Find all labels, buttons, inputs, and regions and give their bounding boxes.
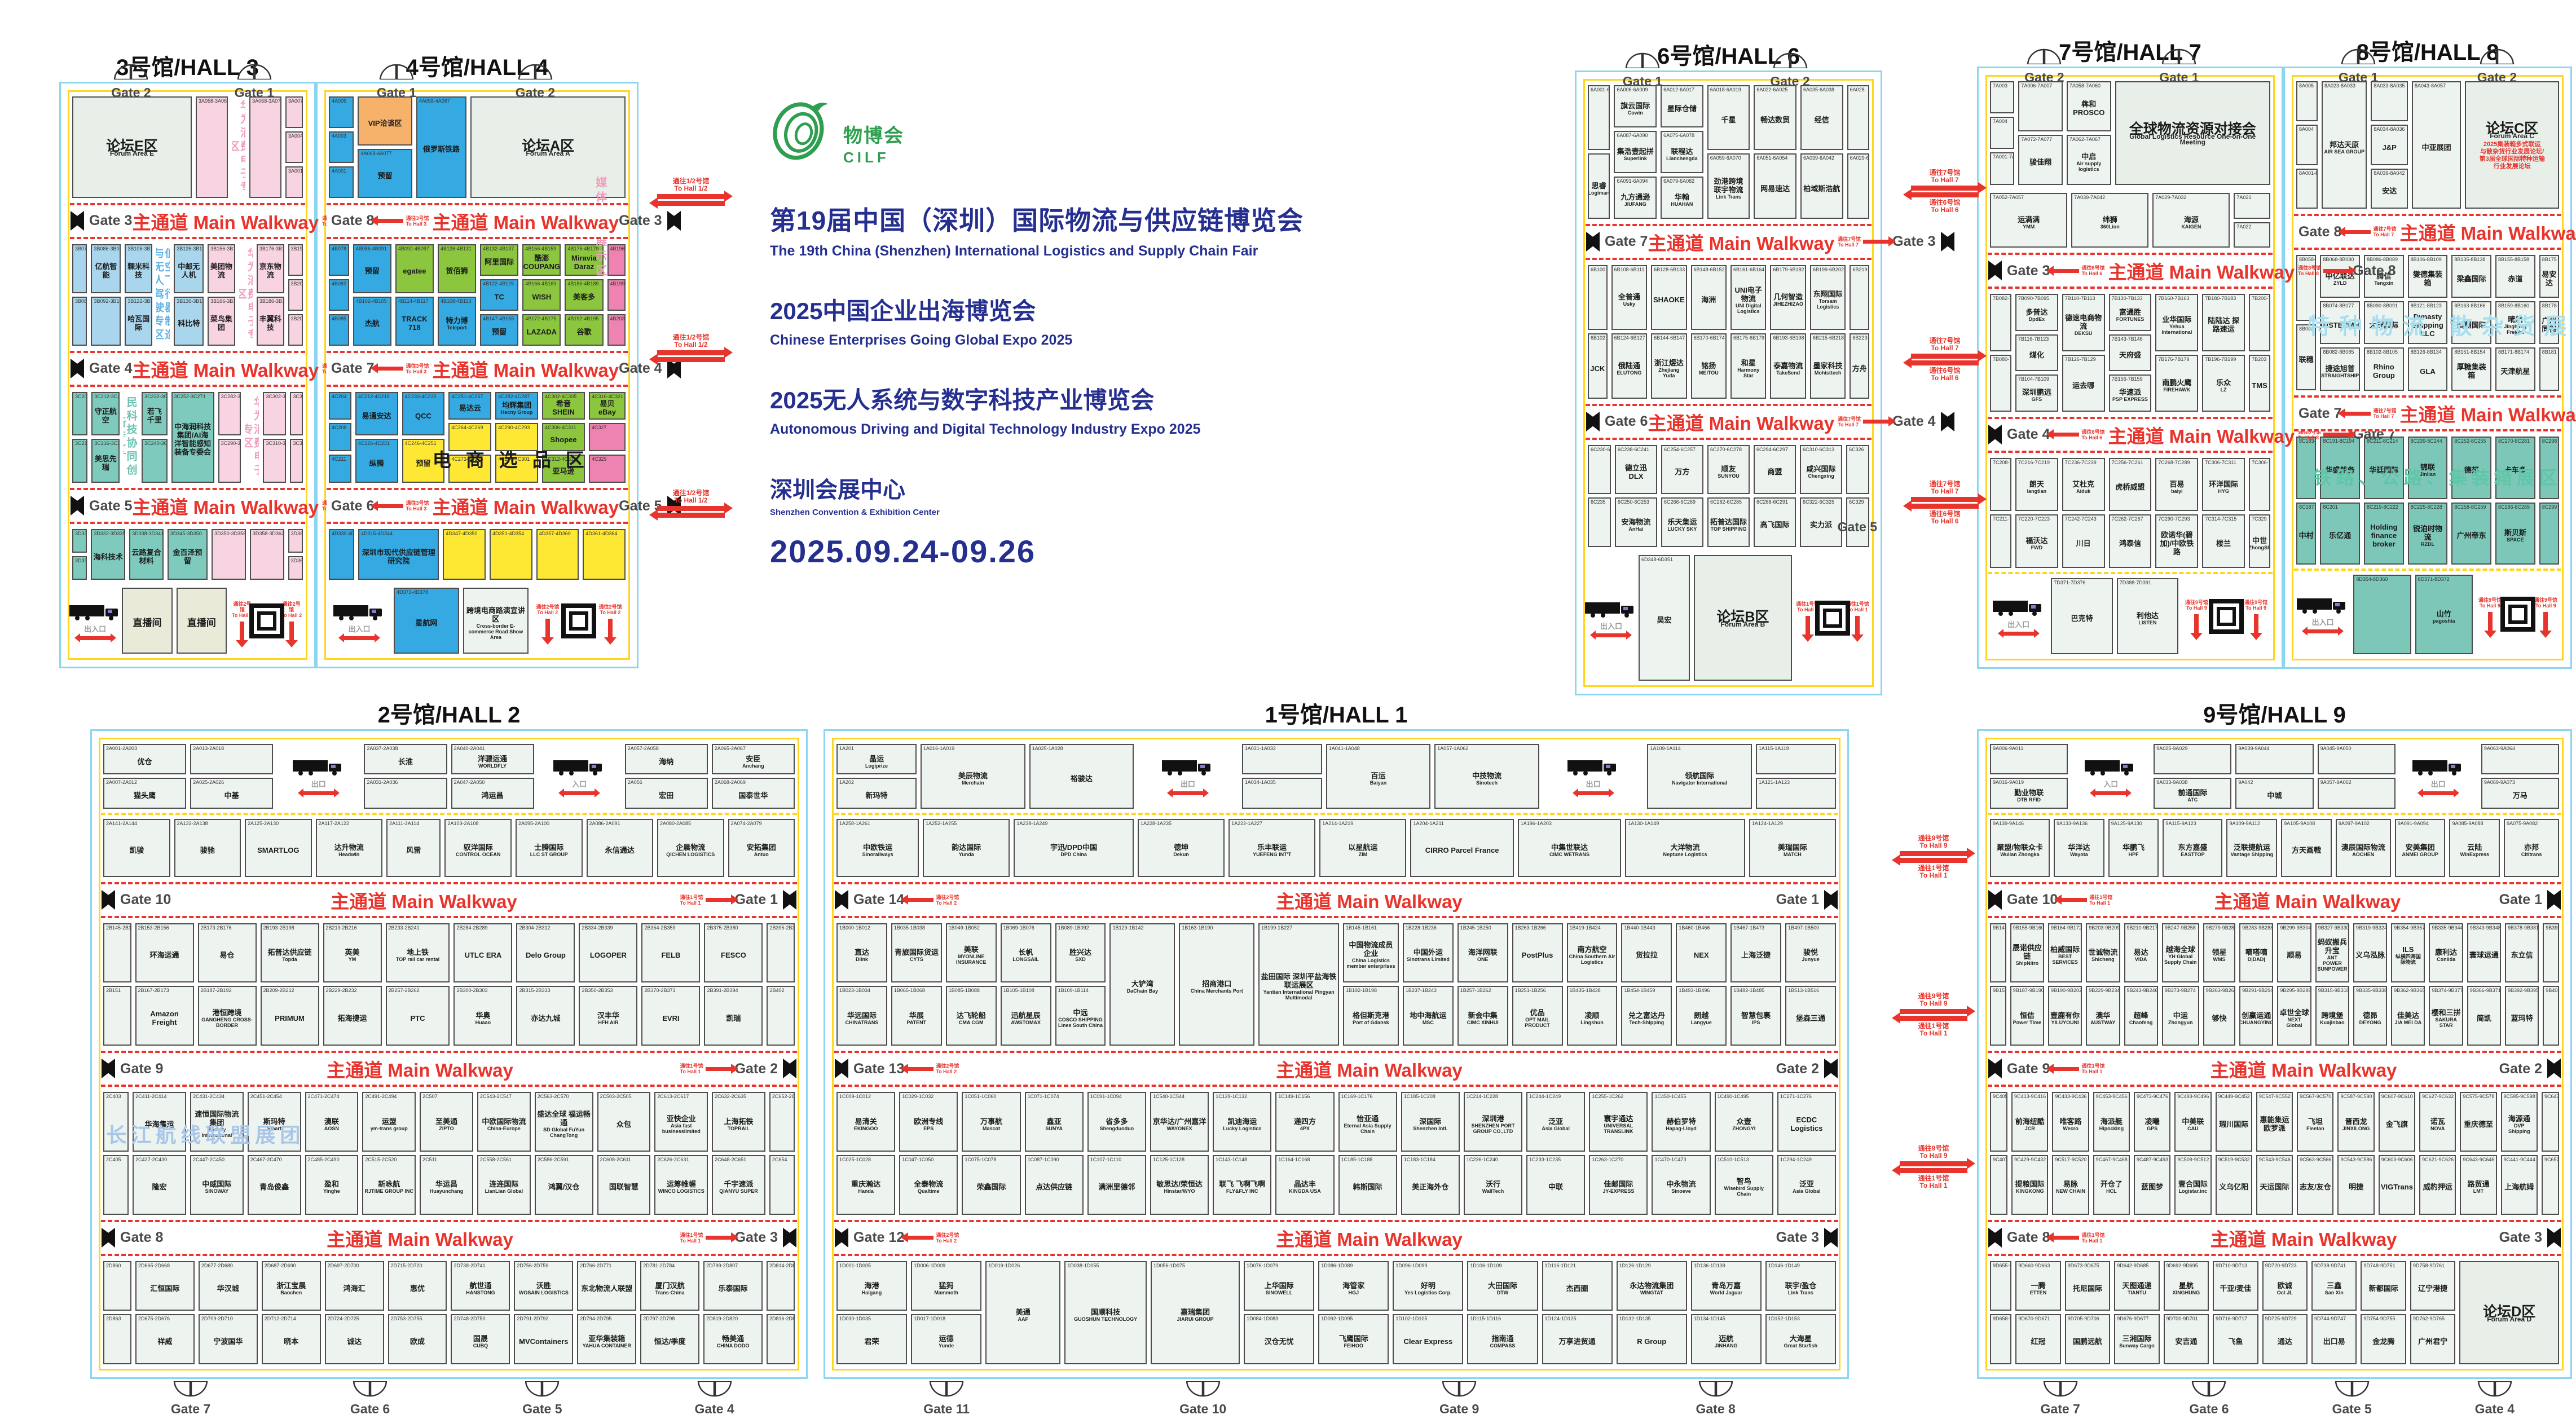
booth-code: 4C264-4C269 xyxy=(451,425,483,430)
booth-sublabel: Baochen xyxy=(280,1290,302,1295)
to-hall-arrow xyxy=(2053,1067,2079,1071)
booth-column: 2C471-2C474澳联AOSN2C485-2C490盈和Yinghe xyxy=(305,1092,359,1215)
gate-bowtie-icon xyxy=(101,1057,116,1080)
booth: 1A130-1A149大洋物流Neptune Logistics xyxy=(1625,819,1745,877)
booth-sublabel: Oct JL xyxy=(2277,1290,2293,1295)
booth-label: 劲港跨境 联宇物流 xyxy=(1710,177,1748,194)
booth-column: 9C493-9C496中美联CAU9C509-9C512壹合国际Logistar… xyxy=(2174,1092,2211,1215)
booth-label: 环洋国际 xyxy=(2209,480,2238,488)
booth-code: 2A133-2A138 xyxy=(177,821,208,826)
booth: 2A057-2A058海纳 xyxy=(625,744,708,774)
booth-label: 大洋物流 xyxy=(1670,843,1699,852)
booth: 9B319-9B324义乌泓脉 xyxy=(2353,923,2387,983)
booth: 9C603-9C606VIGTrans xyxy=(2379,1155,2415,1215)
booth-label: 嘉瑞集团 xyxy=(1181,1308,1210,1316)
booth-column: 2C491-2C494运盟ym-trans group2C515-2C520新咏… xyxy=(362,1092,416,1215)
hall-map-hall3: 论坛E区Forum Area E3A058-3A061华为消费电子专区3A068… xyxy=(59,82,316,668)
booth-label: 阿里国际 xyxy=(485,258,514,266)
booth-label: 上海航姆 xyxy=(2504,1183,2534,1191)
booth-code: 9C587-9C590 xyxy=(2340,1094,2372,1099)
booth-sublabel: CHINA DODO xyxy=(717,1343,750,1349)
to-hall-text: 通往6号馆To Hall 6 xyxy=(1930,199,1961,214)
booth-column: 9B343-9B348寰球运通9B366-9B371简凯 xyxy=(2467,923,2501,1046)
booth-column: 8B106-8B109燮德集装箱8B121-8B123Dynasty Shipp… xyxy=(2408,255,2448,390)
booth-code: 2C558-2C561 xyxy=(480,1157,512,1162)
booth: 8A039-8A042安达 xyxy=(2371,169,2408,209)
booth-sublabel: Antuo xyxy=(754,852,769,857)
booth-label: 指南通 xyxy=(1491,1334,1513,1343)
booth-sublabel: Teleport xyxy=(447,325,467,330)
booth-label: 运筹帷幄 xyxy=(667,1180,696,1188)
booth-code: 1D136-1D139 xyxy=(1694,1263,1725,1268)
booth-code: 2A001-2A003 xyxy=(106,746,137,751)
down-arrow xyxy=(2254,614,2258,633)
stair-item xyxy=(2215,578,2238,654)
booth: 9D758-9D761辽宁港捷 xyxy=(2410,1261,2455,1311)
booth: 3C322 xyxy=(290,392,303,436)
gate-bowtie-icon xyxy=(782,1227,797,1249)
booth: 2D816-2D817 xyxy=(767,1314,795,1364)
booth-code: 1A124-1A129 xyxy=(1752,821,1783,826)
booth-code: 8A034-8A036 xyxy=(2374,126,2405,132)
booth-code: 1B023-1B034 xyxy=(839,988,870,993)
booth-column: 1C091-1C094省多多Shengduoduo1C107-1C110满洲里德… xyxy=(1087,1092,1146,1215)
booth-code: 7C262-7C267 xyxy=(2112,516,2143,522)
booth: 7B104-7B109深圳鹏远GFS xyxy=(2015,374,2058,411)
booth-label: Miravia Daraz xyxy=(567,254,601,271)
booth-code: 1B089-1B092 xyxy=(1058,925,1089,931)
booth-column: 4C302-4C305希音 SHEIN4C306-4C311Shopee4C31… xyxy=(542,392,585,483)
booth: 2C563-2C570盛达全球 福运畅通SD Global FuYun Chan… xyxy=(535,1092,593,1152)
booth-sublabel: STRAIGHTSHIP xyxy=(2321,373,2359,378)
booth-sublabel: Aiduk xyxy=(2076,488,2090,494)
booth-code: 1C025-1C028 xyxy=(839,1157,871,1162)
to-hall-text: 通往1号馆To Hall 1 xyxy=(1918,865,1949,879)
booth-sublabel: China Southern Air Logistics xyxy=(1569,954,1615,965)
booth-label: 网易速达 xyxy=(1760,184,1790,193)
booth-label: 以星航运 xyxy=(1348,843,1377,852)
booth-label: 深圳港 xyxy=(1482,1114,1504,1123)
booth-code: 7A029-7A032 xyxy=(2155,195,2186,200)
booth-code: 7B203 xyxy=(2252,356,2266,362)
booth-code: 7C256-7C261 xyxy=(2112,460,2143,465)
booth-label: Dynasty Shipping LLC xyxy=(2410,312,2446,338)
walkway-label: 主通道 Main Walkway xyxy=(2108,1224,2499,1251)
to-hall-text: 通往9号馆To Hall 9 xyxy=(2244,600,2267,611)
booth-label: 迅航星辰 xyxy=(1011,1011,1041,1020)
booth-code: 2D756-2D759 xyxy=(517,1263,548,1268)
booth: 9C543-9C586明捷 xyxy=(2337,1155,2374,1215)
booth-code: 3A058-3A061 xyxy=(199,98,228,104)
booth-column: 1D086-1D089海管家HGJ1D092-1D095飞鹰国际FEIHOO xyxy=(1318,1261,1389,1364)
walkway-label: 主通道 Main Walkway xyxy=(132,355,319,382)
booth-column: 2C451-2C454斯玛特Smart2C467-2C470青岛俊鑫 xyxy=(248,1092,301,1215)
booth-code: 6A039-6A042 xyxy=(1803,155,1834,161)
booth-label: 沃行 xyxy=(1486,1180,1500,1188)
booth: 2A040-2A041洋骠运通WORLDFLY xyxy=(451,744,534,774)
booth: 1C233-1C235中联 xyxy=(1526,1155,1585,1215)
booth: 2D814-2D815 xyxy=(767,1261,795,1311)
booth-label: 祥威 xyxy=(157,1337,172,1346)
booth-band: 1D001-1D005海港Haigang1D030-1D035君荣1D006-1… xyxy=(834,1257,1838,1368)
booth-code: 1A228-1A235 xyxy=(1141,821,1172,826)
booth-column: 2B153-2B156环海运通2B167-2B173Amazon Freight xyxy=(135,923,194,1046)
booth-label: 地上铁 xyxy=(407,948,429,957)
booth-band: 4D330-4D3334D315-4D344深圳市现代供应链管理研究院4D347… xyxy=(327,525,628,584)
booth-code: 6B161-6B164 xyxy=(1733,267,1764,272)
booth-label: TC xyxy=(495,293,504,301)
booth-code: 9A045-9A050 xyxy=(2320,746,2352,751)
booth-label: 荣鑫国际 xyxy=(976,1183,1006,1191)
booth: 8A023-8A033邦达天原AIR SEA GROUP xyxy=(2322,81,2367,209)
booth-label: 沃胜 xyxy=(536,1281,551,1290)
booth-label: CIRRO Parcel France xyxy=(1425,846,1499,854)
booth-sublabel: WORLDFLY xyxy=(478,763,507,769)
booth-code: 4D347-4D350 xyxy=(446,531,477,536)
gate-label: Gate 1 xyxy=(2339,70,2378,85)
booth-code: 8B106-8B109 xyxy=(2411,257,2442,262)
to-hall-text: 通往7号馆To Hall 7 xyxy=(1930,169,1961,184)
booth-code: 9C407-9C408 xyxy=(1993,1157,2007,1162)
booth-code: 9B263-9B266 xyxy=(2206,988,2235,993)
booth-sublabel: WOSAIN LOGISTICS xyxy=(519,1290,569,1295)
booth-code: 6C270-6C278 xyxy=(1710,447,1742,452)
booth-column: 4B0784B0824B085 xyxy=(329,244,349,346)
booth: 2D799-2D807乐泰国际 xyxy=(703,1261,763,1311)
booth: 1A204-1A211CIRRO Parcel France xyxy=(1410,819,1513,877)
booth: 1B069-1B076长帆LONGSAIL xyxy=(1001,923,1051,983)
booth-sublabel: ELUTONG xyxy=(1617,370,1641,376)
booth-code: 1B049-1B052 xyxy=(949,925,980,931)
booth-code: 9A105-9A108 xyxy=(2284,821,2315,826)
booth-column: 1B263-1B266PostPlus1B251-1B256优品OPT MAIL… xyxy=(1512,923,1563,1046)
booth-code: 9B354-9B357 xyxy=(2394,925,2425,931)
booth-column: 2A037-2A038长淮2A031-2A036 xyxy=(364,744,447,809)
hall-connector: 通往1/2号馆To Hall 1/2 xyxy=(657,178,725,206)
booth-column: 9C473-9C476凌曦GPS9C487-9C493蓝图梦 xyxy=(2134,1092,2170,1215)
to-hall-arrow-right xyxy=(657,350,725,355)
booth: 4B078 xyxy=(329,244,349,276)
booth: 9A063-9A064 xyxy=(2481,744,2559,774)
booth-label: 卡车多 xyxy=(2504,466,2526,474)
booth-label: 菜鸟集团 xyxy=(210,315,233,332)
booth-label: 陆陆达 探路速运 xyxy=(2204,316,2243,333)
booth-label: 宏田 xyxy=(659,791,673,800)
booth-label: Delo Group xyxy=(526,951,566,959)
to-hall-arrow xyxy=(2345,412,2371,416)
booth-code: 9B295-9B298 xyxy=(2280,988,2311,993)
gate-label: Gate 7 xyxy=(1605,233,1648,250)
booth: 3C240-3C245 xyxy=(142,439,167,483)
booth: 4C251-4C257易达云 xyxy=(448,392,491,420)
booth-code: 3B106-3B109 xyxy=(127,246,152,252)
gate-bowtie-icon xyxy=(1940,411,1955,433)
hall-bands: 论坛E区Forum Area E3A058-3A061华为消费电子专区3A068… xyxy=(70,92,305,658)
entrance-label: 出口 xyxy=(1181,778,1195,789)
booth-sublabel: AOSN xyxy=(324,1126,339,1131)
booth-band: 9D655-9D6569D658-9D6599D660-9D663一腾ETTEN… xyxy=(1988,1257,2561,1368)
booth-code: 1D126-1D129 xyxy=(1619,1263,1651,1268)
booth: 全球物流资源对接会Global Logistics Resource One-o… xyxy=(2115,81,2270,185)
booth-label: 达升物流 xyxy=(334,843,364,852)
booth-label: 中世 xyxy=(2252,536,2267,545)
booth-label: 盛达全球 福运畅通 xyxy=(537,1110,591,1127)
booth-code: 2D860 xyxy=(106,1263,121,1268)
booth-code: 3C328 xyxy=(293,440,303,446)
booth-code: 2B395-2B398 xyxy=(769,925,795,931)
gate-bowtie-icon xyxy=(2547,1057,2561,1080)
booth-code: 6C235 xyxy=(1591,499,1606,505)
booth: 9D658-9D659 xyxy=(1990,1314,2011,1364)
booth-label: 德坤 xyxy=(1174,843,1188,852)
gate-bowtie-icon xyxy=(1586,231,1600,253)
booth-column: 2B213-2B216英美YM2B229-2B232拓海捷运 xyxy=(323,923,382,1046)
booth-code: 1C075-1C078 xyxy=(965,1157,996,1162)
booth: 9B335-9B344康利达Conlida xyxy=(2429,923,2463,983)
booth: 1C510-1C513智鸟Wisebird Supply Chain xyxy=(1715,1155,1773,1215)
booth-code: 2C515-2C520 xyxy=(365,1157,397,1162)
booth-sublabel: YH Global Supply Chain xyxy=(2164,954,2197,965)
hall-ground-band: 出入口直播间直播间通往2号馆To Hall 2通往2号馆To Hall 2 xyxy=(70,584,305,658)
booth-sublabel: NEW CHAIN xyxy=(2056,1188,2085,1194)
booth-sublabel: HYG xyxy=(2218,488,2229,494)
booth: 1C143-1C148联飞 飞啊飞啊FLY&FLY INC xyxy=(1213,1155,1271,1215)
booth: 4D351-4D354 xyxy=(490,529,532,580)
booth-code: 4C302-4C305 xyxy=(545,394,576,399)
booth: 6C254-6C257万方 xyxy=(1661,445,1703,495)
booth: 2A103-2A108驭洋国际CONTROL OCEAN xyxy=(444,819,512,877)
booth: 7B143-7B146天府盛 xyxy=(2109,334,2152,371)
booth-column: 9B354-9B357ILS纵横四海国际物流9B362-9B365佳美达JIA … xyxy=(2391,923,2425,1046)
down-arrow xyxy=(2194,614,2199,633)
booth: 9B153-9B154 xyxy=(1990,986,2006,1046)
booth: 2B209-2B212PRIMUM xyxy=(261,986,319,1046)
booth-column: 9B147-9B1489B153-9B154 xyxy=(1990,923,2006,1046)
booth-code: 4C312-4C315 xyxy=(545,456,576,462)
booth-label: 士腾国际 xyxy=(534,843,563,852)
booth: 3C216-3C219美思先瑞 xyxy=(91,439,120,483)
door-arch-icon xyxy=(378,63,415,80)
gate-bowtie-icon xyxy=(782,1057,797,1080)
booth: 1B263-1B266PostPlus xyxy=(1512,923,1563,983)
booth-code: 4D373-4D378 xyxy=(397,589,428,595)
booth-code: 6A028 xyxy=(1850,87,1865,92)
booth-sublabel: EASTTOP xyxy=(2181,852,2204,857)
to-hall-down: 通往9号馆To Hall 9 xyxy=(2477,575,2503,654)
to-hall-text: 通往1/2号馆To Hall 1/2 xyxy=(673,178,710,192)
booth-label: 志友/友仓 xyxy=(2300,1183,2331,1191)
booth-code: 3C252-3C271 xyxy=(174,394,206,399)
booth-label: 中集世联达 xyxy=(1551,843,1588,852)
booth-sublabel: Hecny Group xyxy=(501,409,533,415)
booth: 9B291-9B294创赢运通CHUANGYING xyxy=(2239,986,2273,1046)
booth: 2A111-2A114风雷 xyxy=(386,819,441,877)
booth: 9B299-9B304顺易 xyxy=(2277,923,2311,983)
booth-code: 2C451-2C454 xyxy=(250,1094,282,1099)
walkway-label: 主通道 Main Walkway xyxy=(2399,218,2576,245)
booth-code: 9B343-9B348 xyxy=(2470,925,2501,931)
entrance-item: 入口 xyxy=(2072,744,2150,809)
booth-label: 飞鹰国际 xyxy=(1339,1334,1368,1343)
booth-code: 6C288-6C291 xyxy=(1756,499,1788,505)
booth-code: 6B102 xyxy=(1591,335,1605,341)
booth: 2A031-2A036 xyxy=(364,778,447,808)
booth-code: 7C242-7C243 xyxy=(2065,516,2097,522)
booth: 6D348-6D351昊宏 xyxy=(1639,555,1690,681)
booth-column: 1B035-1B038青旅国际货运CYTS1B065-1B068华展PATENT xyxy=(891,923,942,1046)
booth-sublabel: Port of Gdansk xyxy=(1353,1020,1389,1025)
booth-label: 顺友 xyxy=(1721,465,1736,473)
expo3-title-en: Autonomous Driving and Digital Technolog… xyxy=(770,421,1520,438)
booth: 6C235 xyxy=(1588,497,1611,547)
gate-label: Gate 8 xyxy=(120,1229,163,1246)
booth-code: 4C233-4C235 xyxy=(405,394,437,399)
booth-code: 2C543-2C547 xyxy=(480,1094,512,1099)
booth: 1C470-1C473中永物流Sinoeve xyxy=(1652,1155,1710,1215)
booth-sublabel: Baiyan xyxy=(1370,780,1387,786)
booth: 7B126-7B129运去哪 xyxy=(2062,355,2105,412)
booth-sublabel: Torsam Logistics xyxy=(1812,298,1843,310)
booth: 3D358-3D362 xyxy=(250,529,284,580)
booth: 7B082-7B083 xyxy=(1990,294,2011,351)
booth-column: 2D715-2D720惠优2D753-2D755欧成 xyxy=(388,1261,447,1364)
booth-column: 1D096-1D099好明Yes Logistics Corp.1D102-1D… xyxy=(1393,1261,1463,1364)
to-hall-arrow xyxy=(2053,1236,2079,1240)
booth-column: 1B467-1B473上海泛捷1B482-1B485智慧包裹IPS xyxy=(1730,923,1781,1046)
booth: 3C232-3C235若飞千里 xyxy=(142,392,167,436)
main-walkway: Gate 10通往1号馆To Hall 1主通道 Main WalkwayGat… xyxy=(1988,882,2561,918)
booth: 2D797-2D798恒达/季度 xyxy=(640,1314,699,1364)
booth-sublabel: Sinoeve xyxy=(1671,1188,1691,1194)
booth-label: 云陆 xyxy=(2467,843,2482,852)
to-hall-arrow xyxy=(377,367,403,371)
booth: 2B173-2B176易仓 xyxy=(198,923,257,983)
booth-code: 1D124-1D125 xyxy=(1545,1316,1577,1321)
booth-code: 9C575-9C578 xyxy=(2463,1094,2494,1099)
booth-sublabel: Headwin xyxy=(338,852,359,857)
hall-map-hall6: 6A001-6A003思睿Logimart6A006-6A009旗云国际Cowi… xyxy=(1575,70,1882,695)
booth-label: 中运 xyxy=(2173,1011,2188,1020)
booth-label: TRACK 718 xyxy=(398,315,431,332)
hall-bands: 8A0058A0048A001-8A0028A023-8A033邦达天原AIR … xyxy=(2294,77,2561,658)
booth: 6C310-6C313咸兴国际Chengxing xyxy=(1800,445,1842,495)
booth: 9C467-9C468开仓了HCL xyxy=(2093,1155,2130,1215)
booth-column: 2A065-2A067安臣Anchang2A068-2A069国泰世华 xyxy=(712,744,795,809)
booth: 3A007 xyxy=(285,96,303,128)
booth-column: 9D673-9D675托尼国际9D705-9D706国鹏远航 xyxy=(2065,1261,2110,1364)
booth-code: 9C547-9C552 xyxy=(2259,1094,2291,1099)
booth-code: 8C298 xyxy=(2542,438,2557,444)
booth-label: 实力派 xyxy=(1810,521,1832,529)
booth-label: 星航网 xyxy=(415,619,437,627)
gate-label: Gate 14 xyxy=(853,892,904,908)
booth-label: 澳华 xyxy=(2095,1011,2110,1020)
booth-label: 瑕川国际 xyxy=(2219,1120,2248,1129)
booth-code: 4D357-4D360 xyxy=(539,531,571,536)
booth-code: 1D076-1D079 xyxy=(1247,1263,1278,1268)
booth-column: 9B299-9B304顺易9B295-9B298卓世全球NEXT Global xyxy=(2277,923,2311,1046)
booth: 1A025-1A028裕骏达 xyxy=(1029,744,1134,809)
main-walkway: Gate 4通往6号馆To Hall 6主通道 Main Walkway通往8号… xyxy=(1988,417,2273,453)
booth-label: VIP洽谈区 xyxy=(368,119,402,127)
booth-label: 招商港口 xyxy=(1202,980,1231,988)
booth: 8B178-8B179广州同德 xyxy=(2539,301,2559,344)
booth-code: 1D115-1D116 xyxy=(1470,1316,1501,1321)
booth-sublabel: Logimart xyxy=(1588,190,1610,196)
booth-code: 9B210-9B217 xyxy=(2127,925,2158,931)
booth: 3D367 xyxy=(288,556,303,580)
booth-code: 9C563-9C566 xyxy=(2300,1157,2331,1162)
booth-label: 恒佶 xyxy=(2020,1011,2035,1020)
booth-sublabel: YUEFENG INT'T xyxy=(1253,852,1291,857)
booth-label: 亦达九城 xyxy=(531,1014,560,1023)
booth: 9B366-9B371简凯 xyxy=(2467,986,2501,1046)
booth-label: 环海运通 xyxy=(150,951,179,959)
booth: 3A004 xyxy=(285,131,303,163)
booth-code: 2C613-2C617 xyxy=(657,1094,689,1099)
booth-code: 9B229-9B234 xyxy=(2089,988,2120,993)
booth-label: 领星 xyxy=(2212,948,2226,957)
booth-code: 3C322 xyxy=(293,394,303,399)
booth-label: 中欧铁运 xyxy=(863,843,892,852)
to-hall-text: 通往1号馆To Hall 1 xyxy=(680,1063,703,1074)
booth-label: 新都国际 xyxy=(2369,1284,2398,1293)
booth-code: 8B126-8B134 xyxy=(2411,349,2442,355)
booth: 9D748-9D751新都国际 xyxy=(2361,1261,2406,1311)
booth-label: 欧诚 xyxy=(2278,1281,2292,1290)
booth-code: 9A069-9A073 xyxy=(2484,779,2515,785)
booth: 6C270-6C278顺友SUNYOU xyxy=(1707,445,1750,495)
gate-label: Gate 2 xyxy=(1770,74,1809,89)
booth-code: 6C282-6C285 xyxy=(1710,499,1742,505)
booth-code: 7B160-7B163 xyxy=(2158,296,2189,301)
booth-code: 3D330 xyxy=(75,531,87,536)
booth: 4B147-4B155预留 xyxy=(480,314,518,346)
booth-column: 2D799-2D807乐泰国际2D819-2D820畅美通CHINA DODO xyxy=(703,1261,763,1364)
booth-code: 1C071-1C074 xyxy=(1028,1094,1059,1099)
booth-label: 汉仓无忧 xyxy=(1265,1337,1294,1346)
booth: 2D715-2D720惠优 xyxy=(388,1261,447,1311)
booth-code: 3B166-3B175 xyxy=(210,298,235,304)
booth-code: 1C129-1C132 xyxy=(1216,1094,1247,1099)
booth: 6A006-6A009旗云国际Cowin xyxy=(1614,85,1657,127)
booth: 4D315-4D344深圳市现代供应链管理研究院 xyxy=(358,529,439,580)
booth-code: 4B085 xyxy=(332,316,346,321)
walkway-label: 主通道 Main Walkway xyxy=(2108,1055,2499,1082)
booth-code: 4B108-4B113 xyxy=(441,298,471,304)
booth: 8A004 xyxy=(2296,125,2318,165)
booth-code: 8D371-8D372 xyxy=(2418,576,2450,582)
booth-code: 7B104-7B109 xyxy=(2018,376,2049,382)
door-arch-icon xyxy=(2477,1381,2513,1398)
booth-code: 9B319-9B324 xyxy=(2356,925,2387,931)
booth: 2D724-2D725诚达 xyxy=(325,1314,384,1364)
booth-sublabel: Yes Logistics Corp. xyxy=(1404,1290,1452,1295)
booth-column: 2C507至美通ZIPTO2C511华运昌Huayunchang xyxy=(420,1092,473,1215)
gate-label: Gate 5 xyxy=(89,498,132,514)
booth-code: 8C187 xyxy=(2299,504,2314,510)
booth-sublabel: JY-EXPRESS xyxy=(1602,1188,1634,1194)
booth: 9A139-9A146聚盟/物联众卡Wulian Zhongka xyxy=(1990,819,2050,877)
booth: 4C290-4C293 xyxy=(495,423,538,451)
booth-label: 东立信 xyxy=(2511,951,2533,959)
booth: 1C271-1C276ECDC Logistics xyxy=(1777,1092,1836,1152)
main-walkway: Gate 9通往1号馆To Hall 1主通道 Main WalkwayGate… xyxy=(1988,1051,2561,1087)
booth-code: 8B171-8B174 xyxy=(2498,349,2529,355)
booth: 3D332-3D335海科技术 xyxy=(91,529,125,580)
booth: 2C626-2C631运筹帷幄WINCO LOGISTICS xyxy=(654,1155,708,1215)
booth-label: 达飞轮船 xyxy=(957,1011,986,1020)
